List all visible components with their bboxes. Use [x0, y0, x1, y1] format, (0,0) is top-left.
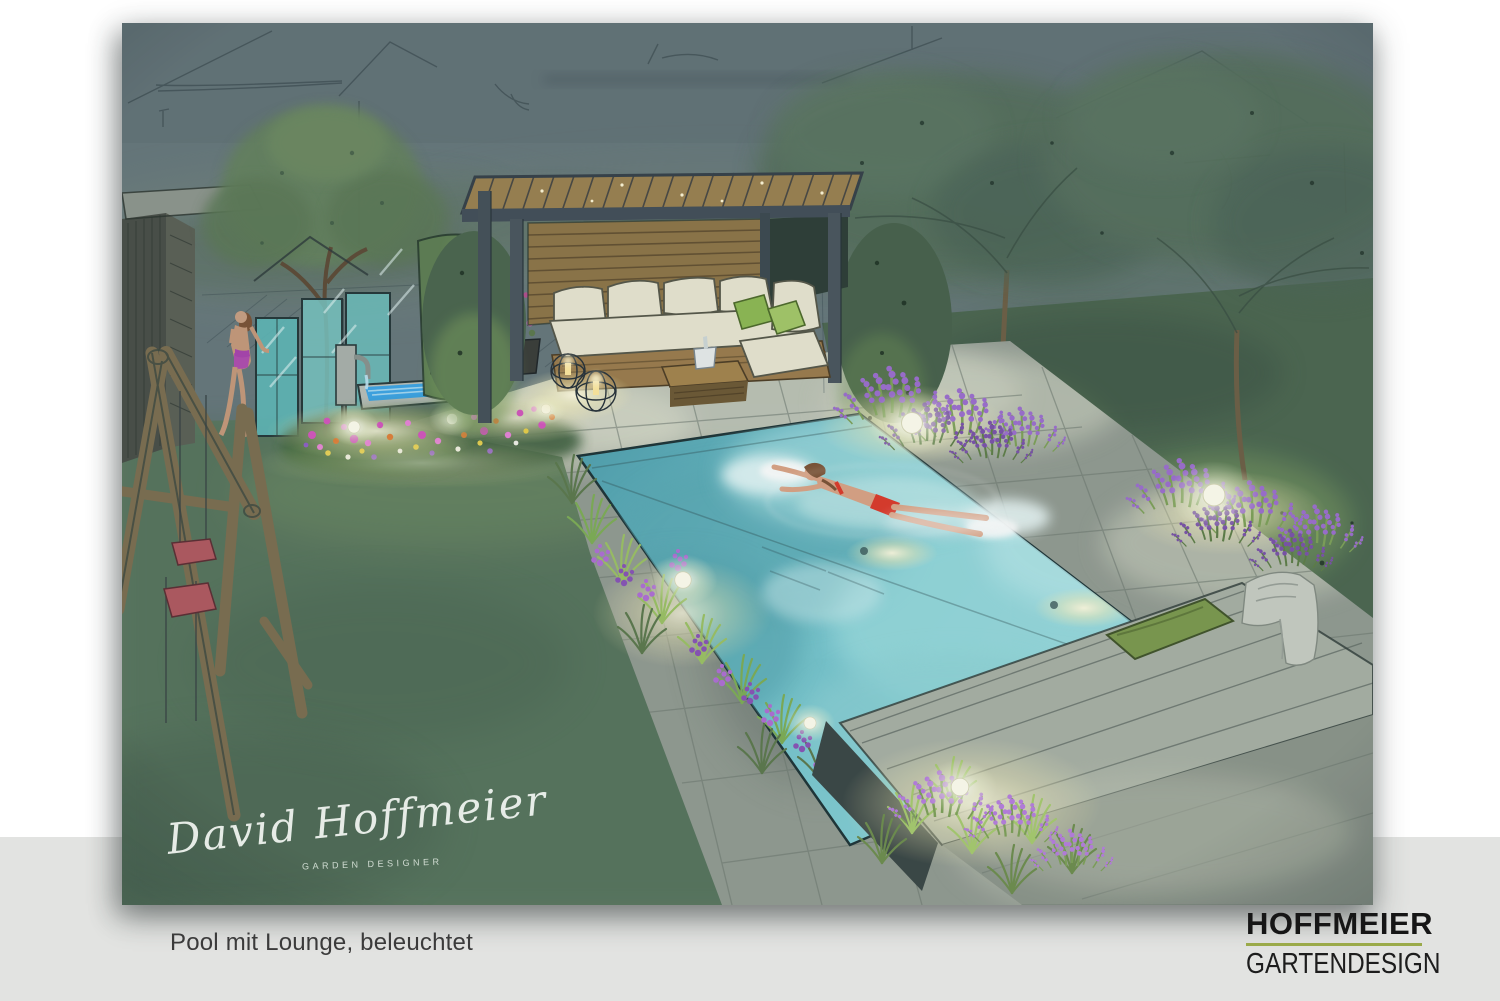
page: David Hoffmeier GARDEN DESIGNER Pool mit… [0, 0, 1500, 1001]
garden-night-scene [122, 23, 1373, 905]
image-caption: Pool mit Lounge, beleuchtet [170, 929, 473, 957]
brand-logo: HOFFMEIER GARTENDESIGN [1246, 908, 1424, 981]
brand-underline [1246, 943, 1422, 946]
brand-tagline: GARTENDESIGN [1246, 948, 1396, 981]
artwork-illustration: David Hoffmeier GARDEN DESIGNER [122, 23, 1373, 905]
brand-name: HOFFMEIER [1246, 908, 1424, 941]
night-tint [122, 23, 1373, 905]
